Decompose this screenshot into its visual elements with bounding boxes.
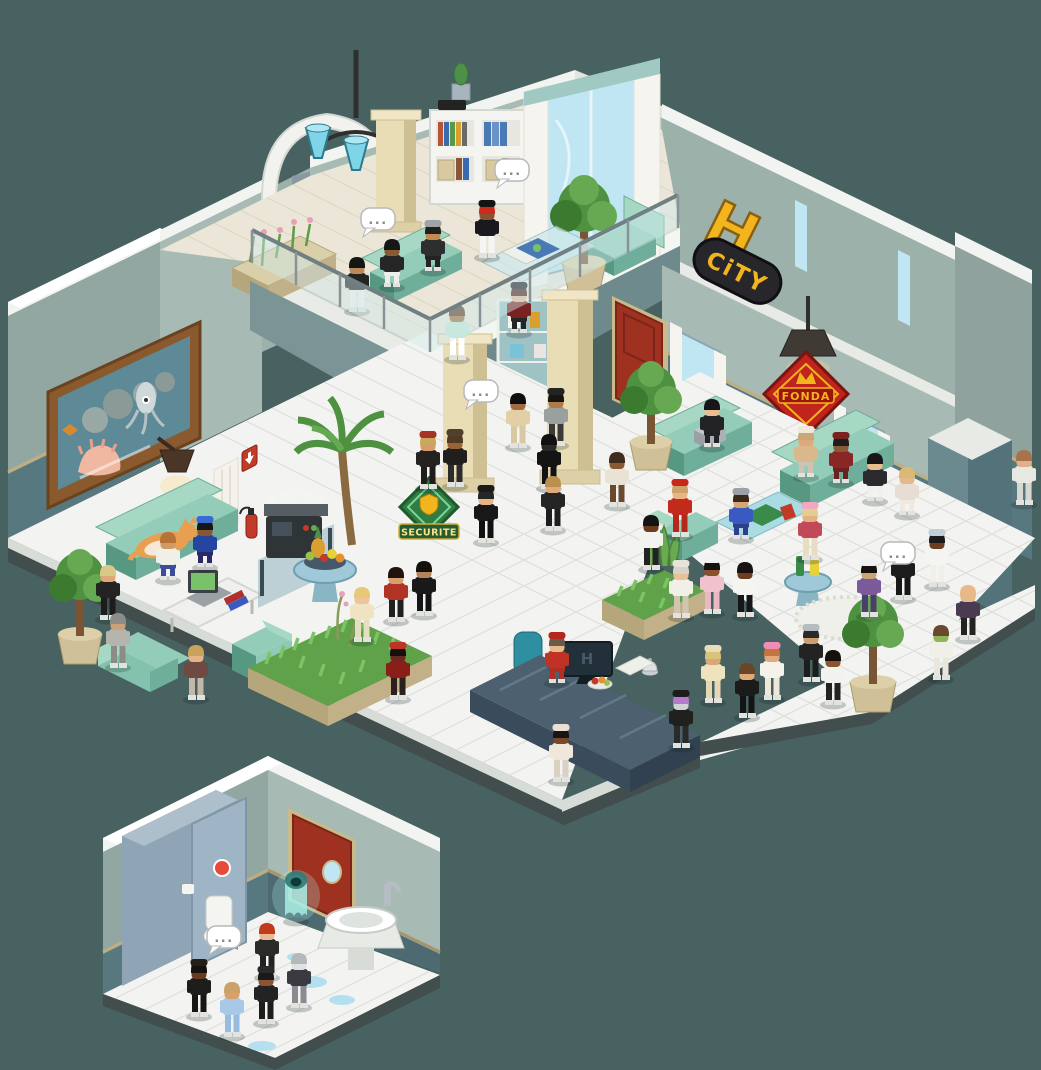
fonda-sign-label: FONDA (782, 390, 831, 403)
monitor-logo: H (581, 650, 594, 668)
room-canvas[interactable]: H CiTY (0, 0, 1041, 1070)
wall-window-slit (898, 250, 910, 326)
speech-bubble-text: ... (888, 547, 907, 562)
toilet-paper (182, 884, 194, 894)
cactus-plant (454, 63, 468, 85)
speech-bubble-text: ... (214, 931, 233, 946)
securite-sign-label: SECURITE (401, 528, 457, 539)
wall-window-slit (795, 200, 807, 272)
game-room-view: H CiTY (0, 0, 1041, 1070)
speech-bubble-text: ... (502, 164, 521, 179)
stall-sign-icon (214, 860, 230, 876)
shield-icon (420, 494, 438, 515)
porthole-window (323, 861, 341, 883)
speech-bubble-text: ... (368, 213, 387, 228)
speech-bubble-text: ... (471, 385, 490, 400)
